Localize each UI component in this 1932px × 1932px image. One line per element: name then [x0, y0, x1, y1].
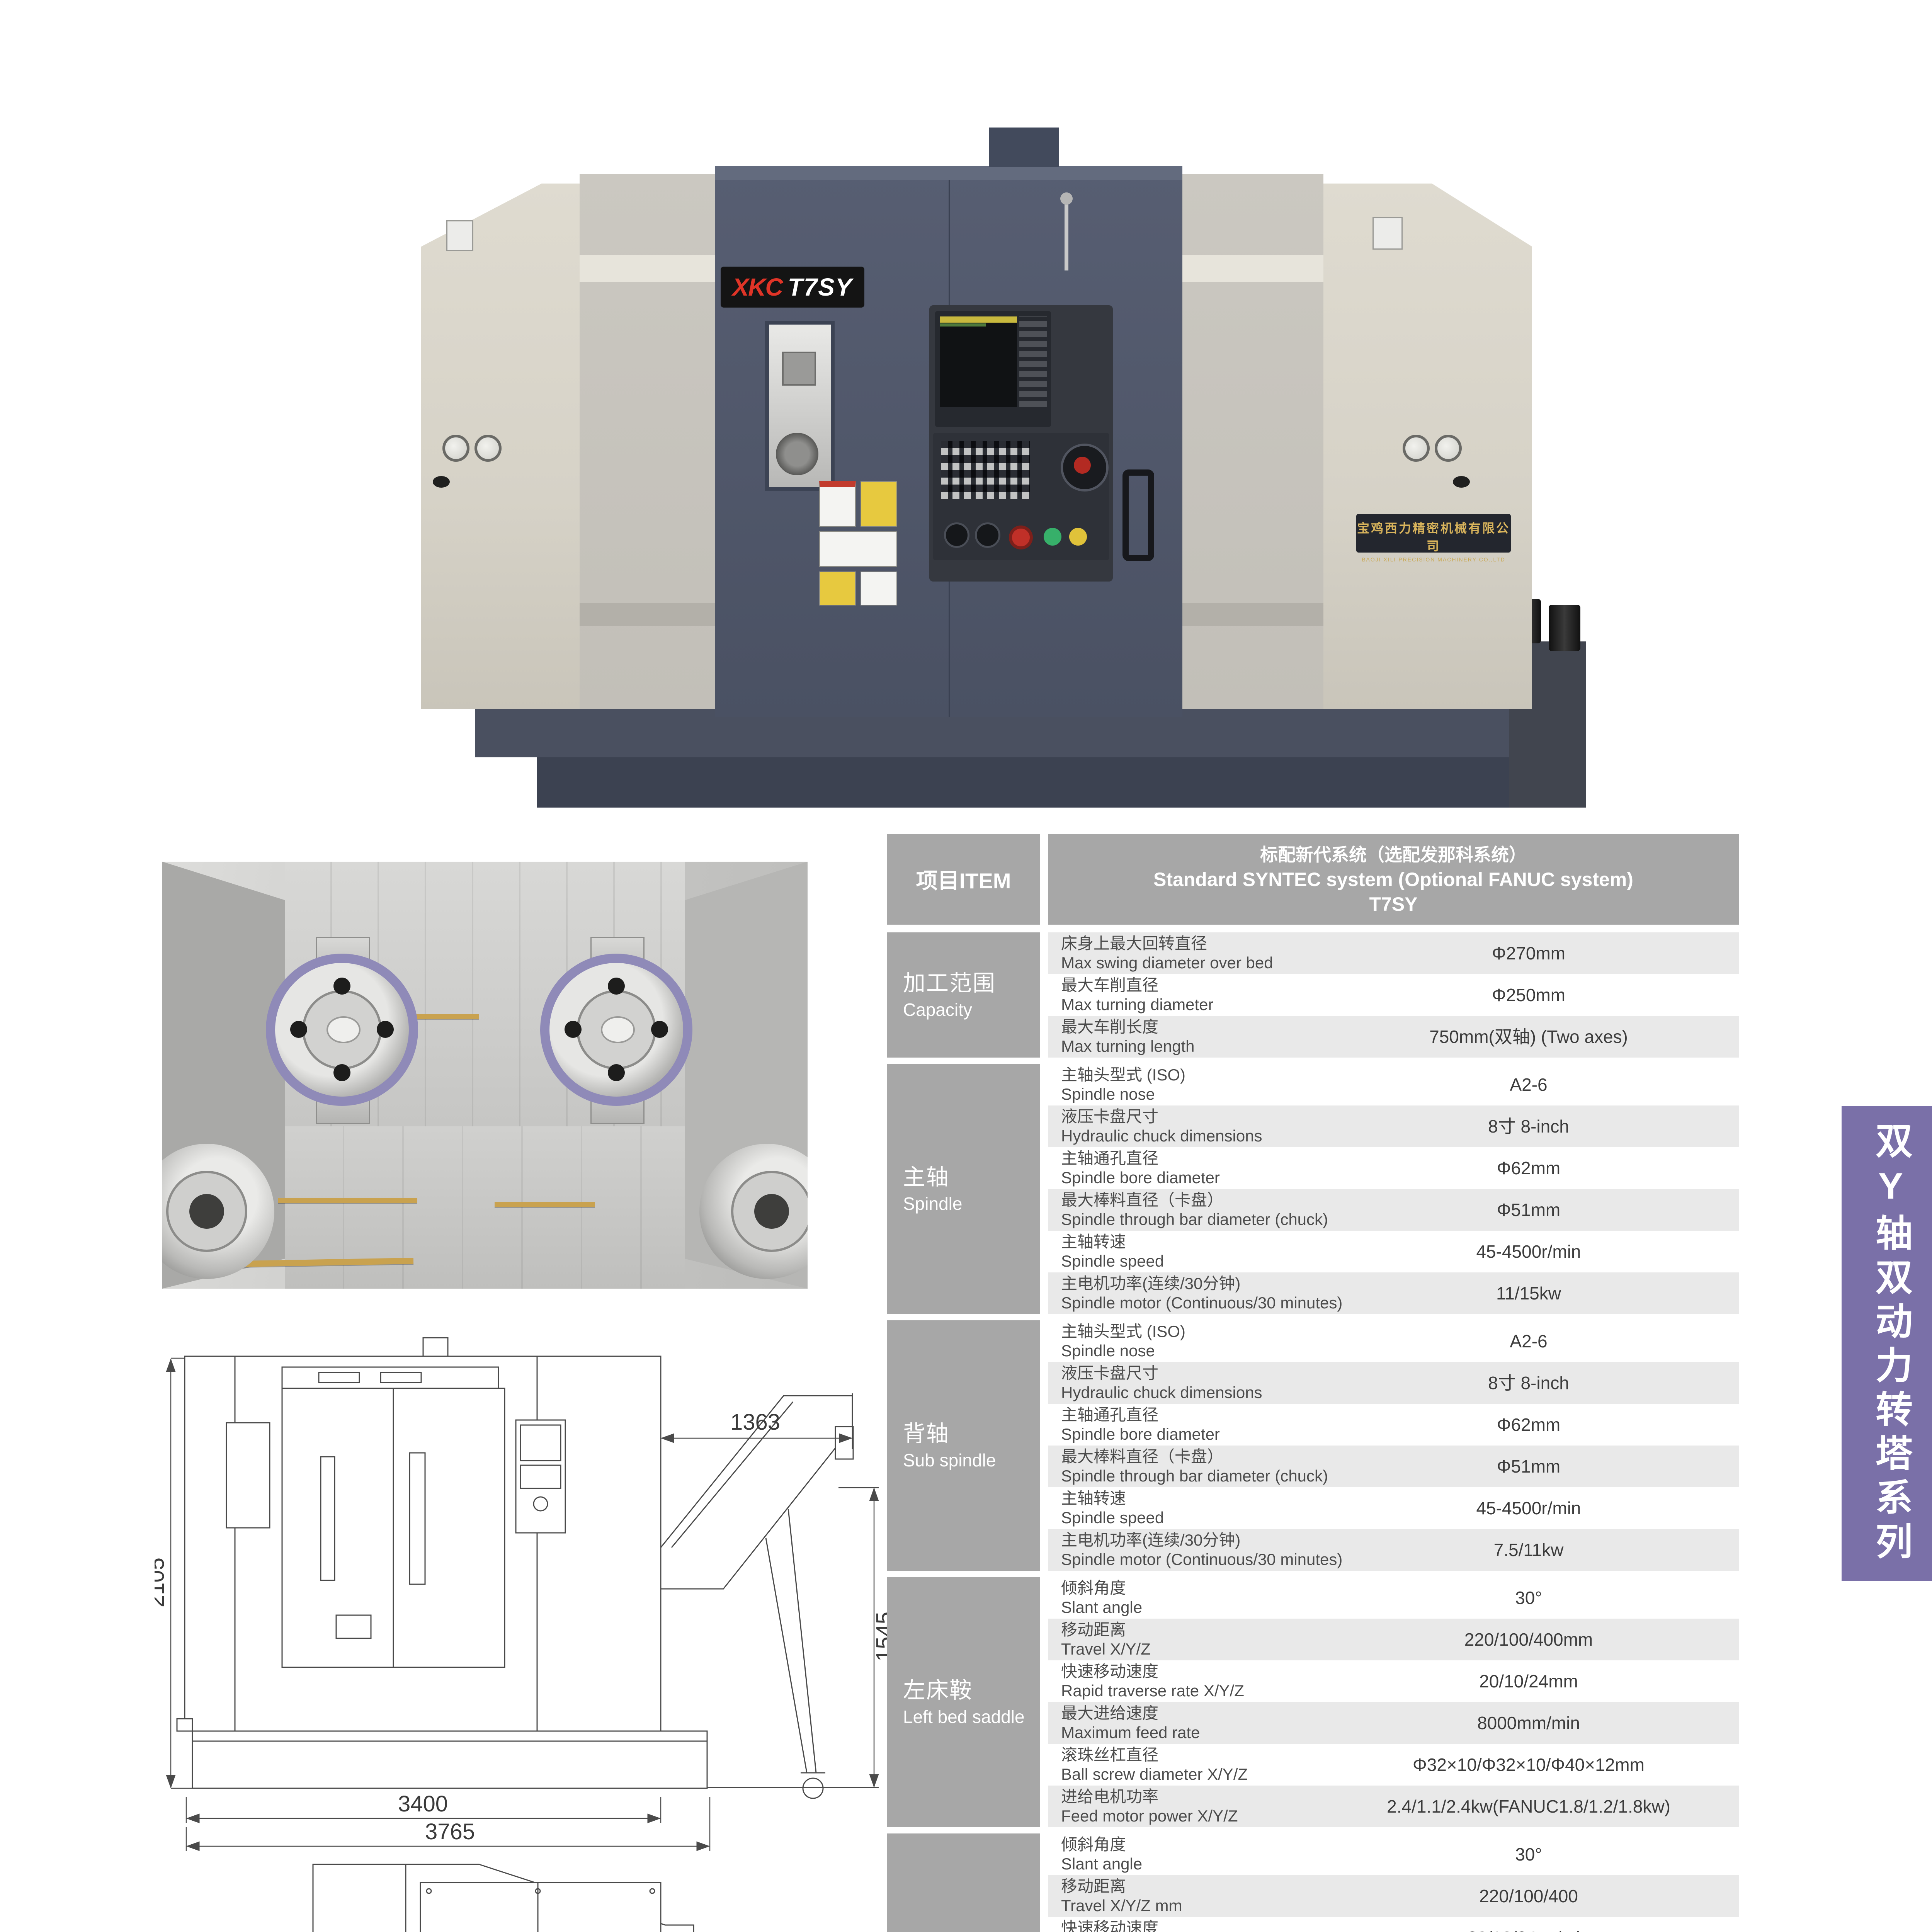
- spec-row: 移动距离Travel X/Y/Z mm220/100/400: [1048, 1875, 1739, 1917]
- dim-1363: 1363: [730, 1410, 780, 1435]
- spec-row-label-cn: 快速移动速度: [1061, 1662, 1318, 1681]
- spec-row-value-line: 750mm(双轴) (Two axes): [1318, 1027, 1739, 1047]
- spec-row: 主轴转速Spindle speed45-4500r/min: [1048, 1231, 1739, 1272]
- spec-row-label: 快速移动速度Rapid traverse rate X/Y/Z: [1048, 1918, 1318, 1932]
- roof-strip: [715, 166, 1182, 180]
- pressure-gauge: [442, 435, 469, 462]
- spec-row-label: 倾斜角度Slant angle: [1048, 1835, 1318, 1874]
- dim-3765: 3765: [425, 1819, 475, 1844]
- way-cover-strip: [278, 1198, 417, 1203]
- spec-row-label-cn: 主轴转速: [1061, 1489, 1318, 1508]
- interior-photo: [162, 862, 808, 1289]
- section-rows: 倾斜角度Slant angle30°移动距离Travel X/Y/Z mm220…: [1048, 1833, 1739, 1932]
- spec-row-label-cn: 最大棒料直径（卡盘）: [1061, 1190, 1318, 1210]
- spec-row-label: 滚珠丝杠直径Ball screw diameter X/Y/Z: [1048, 1745, 1318, 1784]
- spec-row-value-line: 11/15kw: [1318, 1283, 1739, 1303]
- left-panel-shadow: [580, 603, 715, 626]
- spec-row-label: 主轴通孔直径Spindle bore diameter: [1048, 1149, 1318, 1187]
- spec-row-label: 最大车削直径Max turning diameter: [1048, 976, 1318, 1014]
- spec-row-label-cn: 快速移动速度: [1061, 1918, 1318, 1932]
- exhaust-chimney: [989, 128, 1059, 167]
- spec-row-value-line: 220/100/400mm: [1318, 1629, 1739, 1650]
- machine-photo: XKC T7SY: [410, 104, 1588, 811]
- spec-row-label: 最大车削长度Max turning length: [1048, 1017, 1318, 1056]
- spec-row: 主电机功率(连续/30分钟)Spindle motor (Continuous/…: [1048, 1529, 1739, 1571]
- spec-row-label-cn: 床身上最大回转直径: [1061, 934, 1318, 953]
- spec-row-value: 220/100/400: [1318, 1886, 1739, 1906]
- spec-row-value: 7.5/11kw: [1318, 1540, 1739, 1560]
- section-category-en: Capacity: [903, 999, 1040, 1020]
- coolant-pump-icon: [1549, 605, 1580, 651]
- spec-row: 主轴通孔直径Spindle bore diameterΦ62mm: [1048, 1404, 1739, 1446]
- dim-2105: 2105: [155, 1558, 169, 1607]
- spec-row-value: Φ32×10/Φ32×10/Φ40×12mm: [1318, 1755, 1739, 1775]
- spec-row-label-en: Spindle motor (Continuous/30 minutes): [1061, 1293, 1318, 1313]
- spec-row-label-en: Max turning diameter: [1061, 995, 1318, 1014]
- spec-row-label-en: Max swing diameter over bed: [1061, 953, 1318, 973]
- header-model: T7SY: [1369, 892, 1417, 917]
- spec-row: 最大车削直径Max turning diameterΦ250mm: [1048, 974, 1739, 1016]
- section-category: 加工范围Capacity: [887, 932, 1040, 1058]
- model-text: T7SY: [788, 273, 853, 301]
- company-name-en: BAOJI XILI PRECISION MACHINERY CO.,LTD: [1356, 556, 1511, 563]
- cnc-button-grid: [941, 441, 1030, 499]
- spec-sticker: [1372, 217, 1403, 250]
- spec-row-label-en: Spindle speed: [1061, 1252, 1318, 1271]
- section-rows: 主轴头型式 (ISO)Spindle noseA2-6液压卡盘尺寸Hydraul…: [1048, 1320, 1739, 1571]
- series-banner-text: 双Y轴双动力转塔系列: [1864, 1121, 1918, 1566]
- spec-row-value: 20/10/24 m/min: [1318, 1928, 1739, 1932]
- spec-row: 主轴通孔直径Spindle bore diameterΦ62mm: [1048, 1147, 1739, 1189]
- spec-row-value: 20/10/24mm: [1318, 1671, 1739, 1691]
- front-view-drawing: 2105 1363 1545 3400 3765: [155, 1337, 896, 1855]
- spec-row-value: Φ51mm: [1318, 1456, 1739, 1476]
- model-badge: XKC T7SY: [721, 267, 864, 308]
- power-socket: [433, 476, 450, 488]
- cnc-control-panel: [929, 305, 1113, 582]
- spec-row: 最大棒料直径（卡盘）Spindle through bar diameter (…: [1048, 1189, 1739, 1231]
- pressure-gauge: [1403, 435, 1430, 462]
- spec-row-label-en: Spindle nose: [1061, 1085, 1318, 1104]
- company-name-cn: 宝鸡西力精密机械有限公司: [1356, 519, 1511, 554]
- section-category-cn: 左床鞍: [903, 1677, 1040, 1704]
- section-category: 左床鞍Left bed saddle: [887, 1577, 1040, 1827]
- spec-row: 最大棒料直径（卡盘）Spindle through bar diameter (…: [1048, 1446, 1739, 1487]
- spec-row-value-line: Φ270mm: [1318, 943, 1739, 963]
- spec-row-value-line: 7.5/11kw: [1318, 1540, 1739, 1560]
- spec-row-label-en: Max turning length: [1061, 1037, 1318, 1056]
- spec-row-label: 快速移动速度Rapid traverse rate X/Y/Z: [1048, 1662, 1318, 1701]
- spec-section: 右床鞍Right bed saddle倾斜角度Slant angle30°移动距…: [887, 1833, 1739, 1932]
- spec-row-value-line: Φ51mm: [1318, 1456, 1739, 1476]
- section-category: 背轴Sub spindle: [887, 1320, 1040, 1571]
- spec-row: 床身上最大回转直径Max swing diameter over bedΦ270…: [1048, 932, 1739, 974]
- spec-row: 移动距离Travel X/Y/Z220/100/400mm: [1048, 1619, 1739, 1660]
- spec-row-label-cn: 最大车削长度: [1061, 1017, 1318, 1037]
- spec-row-value: Φ62mm: [1318, 1158, 1739, 1178]
- spec-row-label-en: Ball screw diameter X/Y/Z: [1061, 1765, 1318, 1784]
- green-button: [1044, 528, 1061, 546]
- company-nameplate: 宝鸡西力精密机械有限公司 BAOJI XILI PRECISION MACHIN…: [1356, 514, 1511, 553]
- spec-row-label-en: Hydraulic chuck dimensions: [1061, 1383, 1318, 1402]
- spec-row-label: 液压卡盘尺寸Hydraulic chuck dimensions: [1048, 1364, 1318, 1402]
- header-item-cell: 项目ITEM: [887, 834, 1040, 925]
- spec-row-label-cn: 液压卡盘尺寸: [1061, 1364, 1318, 1383]
- right-panel-shadow: [1182, 603, 1323, 626]
- spec-row-label-en: Travel X/Y/Z: [1061, 1639, 1318, 1659]
- side-view-drawing: 1096 445 1977: [263, 1859, 835, 1932]
- spec-row: 滚珠丝杠直径Ball screw diameter X/Y/ZΦ32×10/Φ3…: [1048, 1744, 1739, 1786]
- spec-row-value: 45-4500r/min: [1318, 1498, 1739, 1518]
- spec-row-label: 主电机功率(连续/30分钟)Spindle motor (Continuous/…: [1048, 1274, 1318, 1313]
- spec-row-label: 倾斜角度Slant angle: [1048, 1578, 1318, 1617]
- spec-row-value-line: 220/100/400: [1318, 1886, 1739, 1906]
- spec-row-value-line: 30°: [1318, 1844, 1739, 1864]
- spec-row-label-en: Slant angle: [1061, 1598, 1318, 1617]
- spec-row-label: 主电机功率(连续/30分钟)Spindle motor (Continuous/…: [1048, 1531, 1318, 1569]
- spec-row-label-en: Spindle motor (Continuous/30 minutes): [1061, 1550, 1318, 1569]
- spec-row-label-cn: 主电机功率(连续/30分钟): [1061, 1531, 1318, 1550]
- way-cover-strip: [495, 1202, 595, 1207]
- spec-row: 倾斜角度Slant angle30°: [1048, 1577, 1739, 1619]
- header-line-en: Standard SYNTEC system (Optional FANUC s…: [1153, 867, 1633, 892]
- spec-row-value-line: A2-6: [1318, 1331, 1739, 1351]
- spec-section: 主轴Spindle主轴头型式 (ISO)Spindle noseA2-6液压卡盘…: [887, 1064, 1739, 1314]
- spec-row-label: 主轴头型式 (ISO)Spindle nose: [1048, 1322, 1318, 1361]
- signal-pole-knob: [1060, 192, 1073, 205]
- spec-section: 左床鞍Left bed saddle倾斜角度Slant angle30°移动距离…: [887, 1577, 1739, 1827]
- spec-row-value: 30°: [1318, 1588, 1739, 1608]
- spec-section: 背轴Sub spindle主轴头型式 (ISO)Spindle noseA2-6…: [887, 1320, 1739, 1571]
- cnc-keypad: [1019, 316, 1047, 407]
- spec-row-label-en: Spindle bore diameter: [1061, 1425, 1318, 1444]
- spec-row-value-line: Φ51mm: [1318, 1200, 1739, 1220]
- section-rows: 床身上最大回转直径Max swing diameter over bedΦ270…: [1048, 932, 1739, 1058]
- spec-row-label: 进给电机功率Feed motor power X/Y/Z: [1048, 1787, 1318, 1826]
- spec-row-value-line: Φ62mm: [1318, 1158, 1739, 1178]
- spec-row-label-cn: 主轴头型式 (ISO): [1061, 1322, 1318, 1341]
- section-rows: 倾斜角度Slant angle30°移动距离Travel X/Y/Z220/10…: [1048, 1577, 1739, 1827]
- door-handle-bar: [1122, 469, 1154, 561]
- spec-row-value-line: 20/10/24 m/min: [1318, 1928, 1739, 1932]
- spec-row-label-cn: 移动距离: [1061, 1620, 1318, 1639]
- door-window: [765, 321, 835, 491]
- spec-row-label-en: Spindle through bar diameter (chuck): [1061, 1210, 1318, 1229]
- spec-row-label-cn: 移动距离: [1061, 1877, 1318, 1896]
- spec-row-label-en: Rapid traverse rate X/Y/Z: [1061, 1681, 1318, 1701]
- spec-row-label: 最大棒料直径（卡盘）Spindle through bar diameter (…: [1048, 1190, 1318, 1229]
- spec-row-label-cn: 倾斜角度: [1061, 1578, 1318, 1598]
- section-category-en: Sub spindle: [903, 1449, 1040, 1471]
- series-banner: 双Y轴双动力转塔系列: [1842, 1106, 1932, 1581]
- spec-row: 快速移动速度Rapid traverse rate X/Y/Z20/10/24 …: [1048, 1917, 1739, 1932]
- spec-row-value: A2-6: [1318, 1075, 1739, 1095]
- spec-row: 液压卡盘尺寸Hydraulic chuck dimensions8寸 8-inc…: [1048, 1362, 1739, 1404]
- spec-row-value-line: Φ32×10/Φ32×10/Φ40×12mm: [1318, 1755, 1739, 1775]
- spec-row-value: 220/100/400mm: [1318, 1629, 1739, 1650]
- spec-row-value: 8寸 8-inch: [1318, 1116, 1739, 1136]
- spec-row-value: Φ270mm: [1318, 943, 1739, 963]
- section-category-cn: 背轴: [903, 1420, 1040, 1448]
- spec-row-label-en: Spindle nose: [1061, 1341, 1318, 1361]
- spec-row-value-line: 30°: [1318, 1588, 1739, 1608]
- spec-row-value: 45-4500r/min: [1318, 1242, 1739, 1262]
- spec-row: 倾斜角度Slant angle30°: [1048, 1833, 1739, 1875]
- spec-row: 液压卡盘尺寸Hydraulic chuck dimensions8寸 8-inc…: [1048, 1105, 1739, 1147]
- spec-row-label-en: Slant angle: [1061, 1854, 1318, 1874]
- spec-row: 主电机功率(连续/30分钟)Spindle motor (Continuous/…: [1048, 1272, 1739, 1314]
- section-category: 主轴Spindle: [887, 1064, 1040, 1314]
- spec-row: 最大车削长度Max turning length750mm(双轴) (Two a…: [1048, 1016, 1739, 1058]
- spec-row-label: 最大进给速度Maximum feed rate: [1048, 1704, 1318, 1742]
- cnc-screen: [940, 316, 1017, 407]
- spec-row-label-cn: 滚珠丝杠直径: [1061, 1745, 1318, 1765]
- spec-row: 快速移动速度Rapid traverse rate X/Y/Z20/10/24m…: [1048, 1660, 1739, 1702]
- section-category-en: Left bed saddle: [903, 1706, 1040, 1728]
- pressure-gauge: [1435, 435, 1462, 462]
- emergency-stop-button: [1009, 526, 1033, 549]
- dim-3400: 3400: [398, 1791, 448, 1816]
- cnc-screen-unit: [935, 311, 1051, 427]
- spec-row-label-cn: 主轴头型式 (ISO): [1061, 1065, 1318, 1085]
- spec-table: 项目ITEM 标配新代系统（选配发那科系统） Standard SYNTEC s…: [887, 834, 1739, 1932]
- machine-base-plinth: [537, 757, 1530, 808]
- spec-row-label: 主轴转速Spindle speed: [1048, 1232, 1318, 1271]
- section-category-cn: 加工范围: [903, 969, 1040, 997]
- spec-row-label-cn: 主轴通孔直径: [1061, 1405, 1318, 1425]
- spec-row: 进给电机功率Feed motor power X/Y/Z2.4/1.1/2.4k…: [1048, 1786, 1739, 1827]
- spec-row-value: Φ250mm: [1318, 985, 1739, 1005]
- section-rows: 主轴头型式 (ISO)Spindle noseA2-6液压卡盘尺寸Hydraul…: [1048, 1064, 1739, 1314]
- spec-row-value: 8寸 8-inch: [1318, 1373, 1739, 1393]
- section-category-cn: 主轴: [903, 1163, 1040, 1191]
- spec-row-label-en: Spindle bore diameter: [1061, 1168, 1318, 1187]
- spec-row-value-line: 45-4500r/min: [1318, 1242, 1739, 1262]
- spec-row-label-cn: 进给电机功率: [1061, 1787, 1318, 1806]
- spec-row-label: 主轴头型式 (ISO)Spindle nose: [1048, 1065, 1318, 1104]
- brand-text: XKC: [732, 273, 782, 301]
- header-system-cell: 标配新代系统（选配发那科系统） Standard SYNTEC system (…: [1048, 834, 1739, 925]
- spec-row-label-en: Spindle through bar diameter (chuck): [1061, 1466, 1318, 1486]
- left-inner-panel: [580, 174, 715, 709]
- spec-row: 主轴头型式 (ISO)Spindle noseA2-6: [1048, 1064, 1739, 1105]
- spec-row-label-cn: 主轴转速: [1061, 1232, 1318, 1252]
- spec-row-label-cn: 主轴通孔直径: [1061, 1149, 1318, 1168]
- spec-row-value: 30°: [1318, 1844, 1739, 1864]
- spec-row-label-cn: 液压卡盘尺寸: [1061, 1107, 1318, 1126]
- spec-row-label-en: Maximum feed rate: [1061, 1723, 1318, 1742]
- spec-row-value-line: 2.4/1.1/2.4kw(FANUC1.8/1.2/1.8kw): [1318, 1796, 1739, 1816]
- right-panel-highlight: [1182, 255, 1323, 282]
- section-category: 右床鞍Right bed saddle: [887, 1833, 1040, 1932]
- section-category-en: Spindle: [903, 1193, 1040, 1214]
- right-inner-panel: [1182, 174, 1323, 709]
- left-panel-highlight: [580, 255, 715, 282]
- signal-pole: [1065, 201, 1068, 270]
- spec-row-label-en: Spindle speed: [1061, 1508, 1318, 1527]
- spec-row-label-cn: 最大进给速度: [1061, 1704, 1318, 1723]
- spec-row-value-line: Φ62mm: [1318, 1415, 1739, 1435]
- spec-row: 最大进给速度Maximum feed rate8000mm/min: [1048, 1702, 1739, 1744]
- pressure-gauge: [474, 435, 502, 462]
- spec-row-value: 750mm(双轴) (Two axes): [1318, 1027, 1739, 1047]
- header-line-cn: 标配新代系统（选配发那科系统）: [1260, 842, 1527, 867]
- spec-row-value-line: 45-4500r/min: [1318, 1498, 1739, 1518]
- spec-row-value-line: A2-6: [1318, 1075, 1739, 1095]
- spec-row-label-en: Travel X/Y/Z mm: [1061, 1896, 1318, 1915]
- yellow-button: [1069, 528, 1087, 546]
- spec-row-label: 移动距离Travel X/Y/Z mm: [1048, 1877, 1318, 1915]
- spec-row-value: A2-6: [1318, 1331, 1739, 1351]
- warning-labels: [819, 481, 902, 607]
- spec-row-label: 床身上最大回转直径Max swing diameter over bed: [1048, 934, 1318, 973]
- cnc-handwheel: [1061, 444, 1109, 492]
- spec-row-value: 11/15kw: [1318, 1283, 1739, 1303]
- spec-sections: 加工范围Capacity床身上最大回转直径Max swing diameter …: [887, 932, 1739, 1932]
- spec-row-value: 2.4/1.1/2.4kw(FANUC1.8/1.2/1.8kw): [1318, 1796, 1739, 1816]
- spec-row-value-line: Φ250mm: [1318, 985, 1739, 1005]
- cnc-lower-panel: [933, 433, 1109, 560]
- spec-row-label-en: Hydraulic chuck dimensions: [1061, 1126, 1318, 1146]
- spec-section: 加工范围Capacity床身上最大回转直径Max swing diameter …: [887, 932, 1739, 1058]
- spec-row-value: Φ62mm: [1318, 1415, 1739, 1435]
- spec-row: 主轴头型式 (ISO)Spindle noseA2-6: [1048, 1320, 1739, 1362]
- spec-row-label-cn: 最大车削直径: [1061, 976, 1318, 995]
- spec-row-value-line: 20/10/24mm: [1318, 1671, 1739, 1691]
- spec-row-label-cn: 主电机功率(连续/30分钟): [1061, 1274, 1318, 1293]
- spec-row-label: 主轴通孔直径Spindle bore diameter: [1048, 1405, 1318, 1444]
- spec-row-value-line: 8000mm/min: [1318, 1713, 1739, 1733]
- power-socket: [1453, 476, 1470, 488]
- spec-row-value-line: 8寸 8-inch: [1318, 1373, 1739, 1393]
- spec-row-label: 移动距离Travel X/Y/Z: [1048, 1620, 1318, 1659]
- spec-row: 主轴转速Spindle speed45-4500r/min: [1048, 1487, 1739, 1529]
- spec-row-label-cn: 最大棒料直径（卡盘）: [1061, 1447, 1318, 1466]
- spec-row-label-en: Feed motor power X/Y/Z: [1061, 1806, 1318, 1826]
- spec-table-header: 项目ITEM 标配新代系统（选配发那科系统） Standard SYNTEC s…: [887, 834, 1739, 925]
- spec-row-label: 主轴转速Spindle speed: [1048, 1489, 1318, 1527]
- spec-row-value-line: 8寸 8-inch: [1318, 1116, 1739, 1136]
- spec-row-value: 8000mm/min: [1318, 1713, 1739, 1733]
- spec-row-label-cn: 倾斜角度: [1061, 1835, 1318, 1854]
- spec-row-label: 最大棒料直径（卡盘）Spindle through bar diameter (…: [1048, 1447, 1318, 1486]
- spec-row-value: Φ51mm: [1318, 1200, 1739, 1220]
- spec-sticker: [446, 220, 473, 251]
- spec-row-label: 液压卡盘尺寸Hydraulic chuck dimensions: [1048, 1107, 1318, 1146]
